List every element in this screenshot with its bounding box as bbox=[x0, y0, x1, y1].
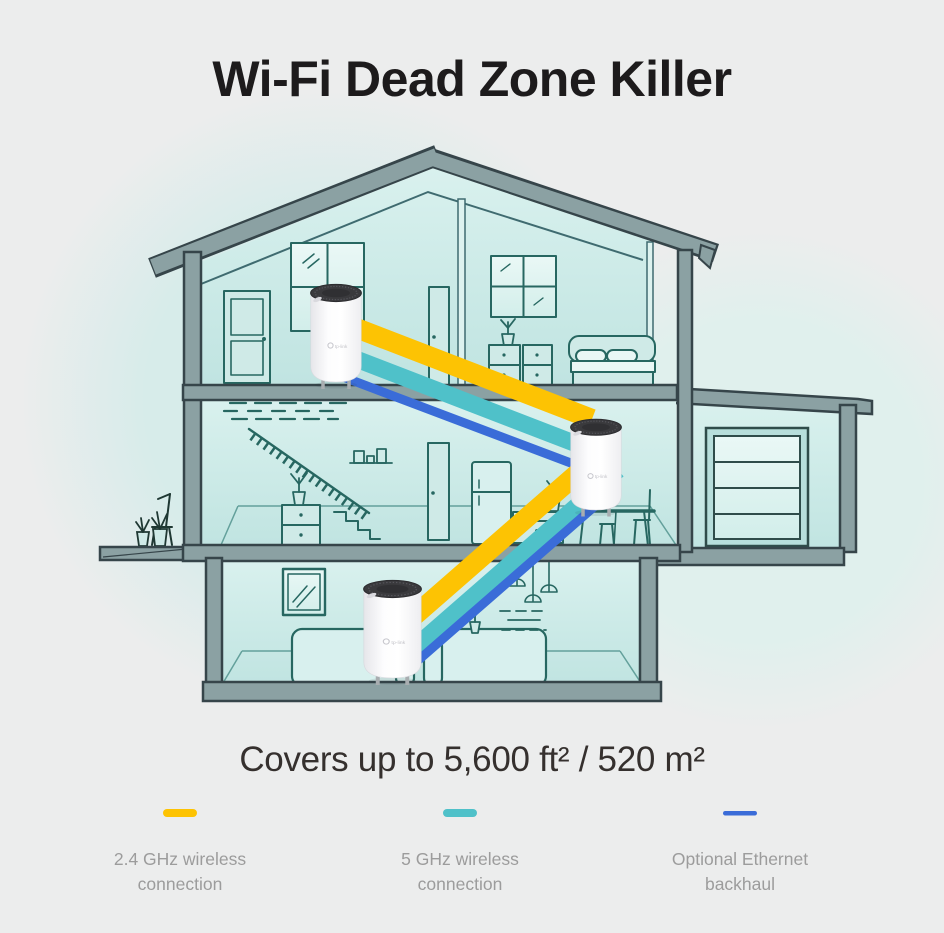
base-slab bbox=[203, 682, 661, 701]
attic-door bbox=[224, 291, 270, 383]
legend-label-line: 2.4 GHz wireless bbox=[114, 849, 246, 869]
wall-mirror bbox=[283, 569, 325, 615]
legend-label-line: Optional Ethernet bbox=[672, 849, 808, 869]
page-title: Wi-Fi Dead Zone Killer bbox=[0, 50, 944, 108]
garage-door bbox=[706, 428, 808, 546]
bedroom-window bbox=[491, 256, 556, 317]
legend-label-line: backhaul bbox=[705, 874, 775, 894]
product-infographic: tp-link bbox=[0, 0, 944, 933]
coverage-text: Covers up to 5,600 ft² / 520 m² bbox=[0, 740, 944, 780]
deco-unit-attic bbox=[311, 284, 362, 389]
legend-label-24ghz: 2.4 GHz wireless connection bbox=[60, 847, 300, 898]
legend-label-line: connection bbox=[418, 874, 503, 894]
hall-door bbox=[428, 443, 449, 540]
right-post bbox=[678, 250, 692, 552]
legend-label-5ghz: 5 GHz wireless connection bbox=[340, 847, 580, 898]
ground-left-wall bbox=[206, 558, 222, 684]
bed bbox=[569, 336, 655, 386]
legend-label-line: connection bbox=[138, 874, 223, 894]
ground-right-wall bbox=[640, 558, 657, 684]
house-illustration: tp-link bbox=[0, 0, 944, 933]
garage-right-wall bbox=[840, 405, 856, 552]
deco-unit-living-room bbox=[571, 419, 622, 516]
band-swatch-ethernet-icon bbox=[722, 808, 758, 818]
deco-unit-ground-floor bbox=[364, 580, 422, 685]
legend-item-5ghz: 5 GHz wireless connection bbox=[340, 808, 580, 898]
legend-label-ethernet: Optional Ethernet backhaul bbox=[620, 847, 860, 898]
band-swatch-24ghz-icon bbox=[162, 808, 198, 818]
band-swatch-5ghz-icon bbox=[442, 808, 478, 818]
legend-item-ethernet: Optional Ethernet backhaul bbox=[620, 808, 860, 898]
legend-label-line: 5 GHz wireless bbox=[401, 849, 519, 869]
legend-item-24ghz: 2.4 GHz wireless connection bbox=[60, 808, 300, 898]
middle-floor-slab bbox=[183, 545, 680, 561]
